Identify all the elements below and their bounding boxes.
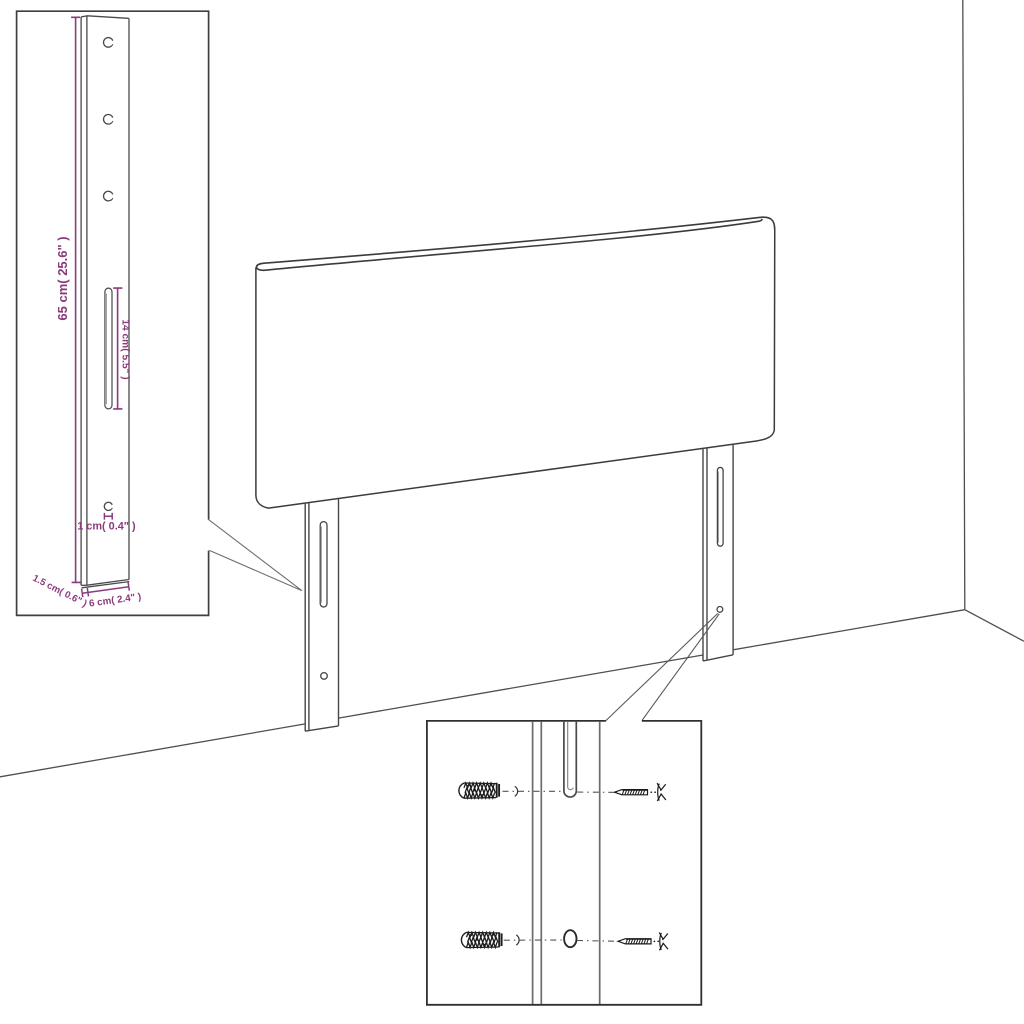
svg-text:14 cm( 5.5" ): 14 cm( 5.5" ) xyxy=(119,319,130,379)
svg-text:1.5 cm( 0.6" ): 1.5 cm( 0.6" ) xyxy=(31,573,89,610)
svg-text:65 cm( 25.6" ): 65 cm( 25.6" ) xyxy=(55,236,70,320)
svg-text:1 cm( 0.4" ): 1 cm( 0.4" ) xyxy=(77,520,136,532)
svg-text:6 cm( 2.4" ): 6 cm( 2.4" ) xyxy=(88,592,142,610)
